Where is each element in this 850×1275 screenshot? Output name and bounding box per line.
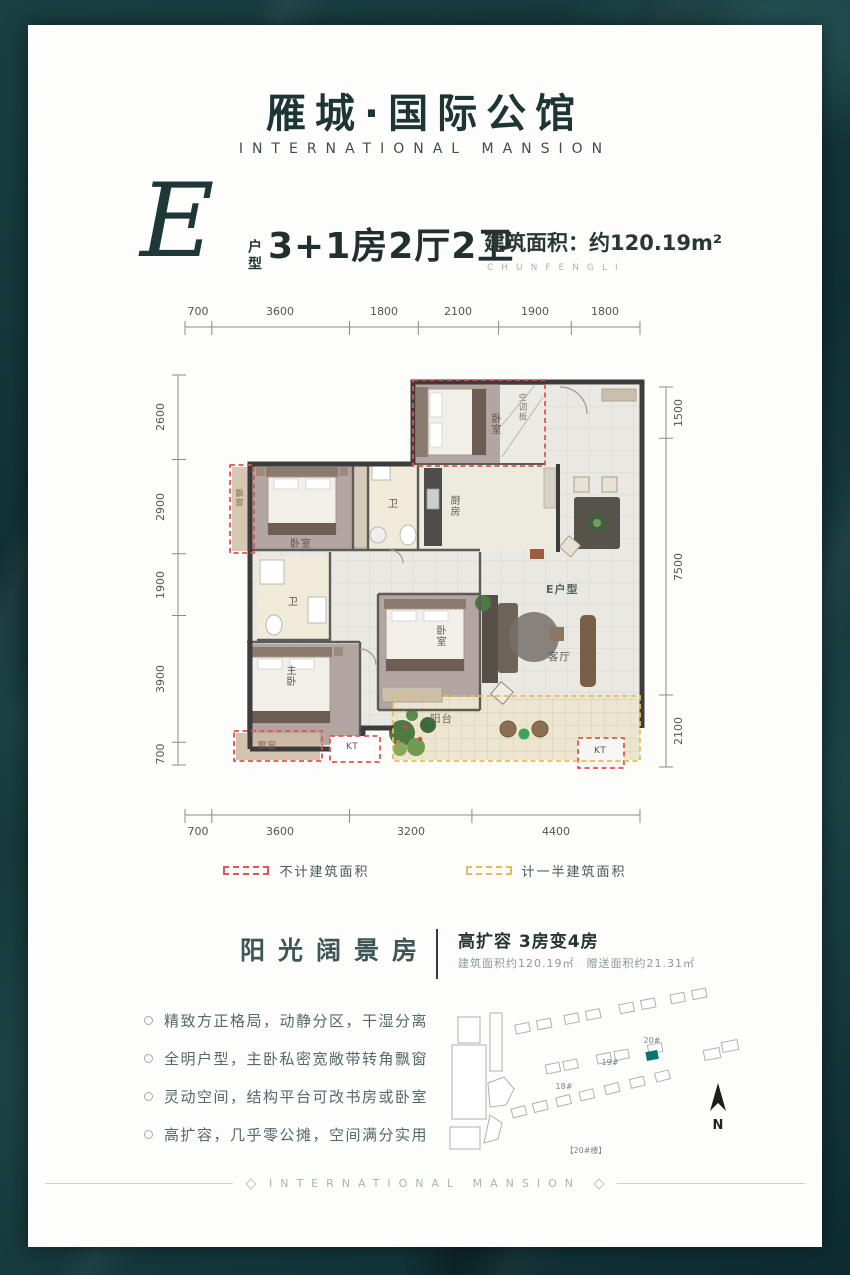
unit-letter: E (140, 171, 214, 273)
room-label-kt2: KT (594, 746, 607, 756)
dim-label: 1500 (672, 399, 685, 427)
feature-item: 高扩容，几乎零公摊，空间满分实用 (144, 1115, 474, 1153)
unit-tag-label: E户型 (546, 581, 579, 597)
room-label-bath2: 卫 (288, 593, 299, 608)
poster-page: { "brand": { "title": "雁城·国际公馆", "subtit… (0, 0, 850, 1275)
dim-label: 2100 (672, 717, 685, 745)
room-label-bedroom-mid: 卧室 (432, 625, 447, 647)
building-label-18: 18# (556, 1082, 573, 1091)
feature-item: 灵动空间，结构平台可改书房或卧室 (144, 1077, 474, 1115)
dim-label: 4400 (542, 825, 570, 838)
room-label-kitchen: 厨房 (446, 495, 461, 517)
floor-plan-svg: 700 3600 1800 2100 1900 1800 700 3600 32… (150, 297, 710, 845)
dim-label: 2100 (444, 305, 472, 318)
dim-label: 3600 (266, 825, 294, 838)
feature-item: 精致方正格局，动静分区，干湿分离 (144, 1001, 474, 1039)
plan-legend: 不计建筑面积 计一半建筑面积 (28, 861, 822, 880)
unit-area: 建筑面积：约120.19m² (484, 227, 722, 257)
footer-line (45, 1183, 233, 1184)
legend-label: 计一半建筑面积 (522, 861, 627, 880)
room-label-bedroom-left: 卧室 (290, 535, 312, 550)
dim-label: 1900 (521, 305, 549, 318)
room-label-bay-bottom: 飘窗 (258, 739, 277, 751)
room-label-living: 客厅 (548, 649, 571, 664)
highlight-divider (436, 929, 438, 979)
room-label-kt1: KT (346, 742, 359, 752)
building-label-19: 19# (602, 1058, 619, 1067)
dim-label: 2900 (154, 493, 167, 521)
diamond-icon (593, 1178, 604, 1189)
bullet-icon (144, 1092, 153, 1101)
site-plan: 18# 19# 20# 【20#楼】 N (446, 987, 746, 1165)
dim-label: 700 (154, 744, 167, 765)
feature-text: 灵动空间，结构平台可改书房或卧室 (164, 1086, 428, 1107)
legend-item-no-count: 不计建筑面积 (223, 861, 369, 880)
unit-type-label: 户型 (244, 239, 264, 273)
north-label: N (713, 1118, 724, 1133)
bullet-icon (144, 1016, 153, 1025)
unit-series-en: CHUNFENGLI (487, 263, 626, 273)
footer: INTERNATIONAL MANSION (28, 1177, 822, 1190)
yellow-dash-swatch (466, 866, 512, 875)
room-label-bedroom-top: 卧室 (487, 413, 502, 435)
legend-label: 不计建筑面积 (279, 861, 369, 880)
room-label-master: 主卧 (282, 665, 297, 687)
highlight-title: 阳光阔景房 (240, 931, 430, 967)
room-label-bath1: 卫 (388, 495, 399, 510)
unit-layout: 3+1房2厅2卫 (268, 217, 514, 269)
feature-item: 全明户型，主卧私密宽敞带转角飘窗 (144, 1039, 474, 1077)
room-label-balcony: 阳台 (430, 711, 453, 726)
red-dash-swatch (223, 866, 269, 875)
dim-label: 1800 (591, 305, 619, 318)
building-label-20: 20# (644, 1036, 661, 1045)
floor-plan: 700 3600 1800 2100 1900 1800 700 3600 32… (150, 297, 710, 845)
footer-text: INTERNATIONAL MANSION (269, 1177, 581, 1190)
feature-text: 高扩容，几乎零公摊，空间满分实用 (164, 1124, 428, 1145)
site-buildings (450, 988, 739, 1149)
brand-title: 雁城·国际公馆 (28, 81, 822, 139)
legend-item-half-count: 计一半建筑面积 (466, 861, 627, 880)
dim-label: 3900 (154, 665, 167, 693)
dim-label: 2600 (154, 403, 167, 431)
feature-text: 精致方正格局，动静分区，干湿分离 (164, 1010, 428, 1031)
bullet-icon (144, 1054, 153, 1063)
highlighted-building (645, 1050, 658, 1061)
room-label-bay-left: 飘窗 (234, 489, 245, 507)
dim-label: 1900 (154, 571, 167, 599)
site-caption: 【20#楼】 (566, 1145, 607, 1155)
feature-list: 精致方正格局，动静分区，干湿分离 全明户型，主卧私密宽敞带转角飘窗 灵动空间，结… (144, 1001, 474, 1153)
dim-label: 3200 (397, 825, 425, 838)
north-arrow-icon (710, 1083, 726, 1111)
brand-subtitle: INTERNATIONAL MANSION (28, 141, 822, 157)
poster-card: 雁城·国际公馆 INTERNATIONAL MANSION E 户型 3+1房2… (28, 25, 822, 1247)
bullet-icon (144, 1130, 153, 1139)
feature-text: 全明户型，主卧私密宽敞带转角飘窗 (164, 1048, 428, 1069)
footer-line (617, 1183, 805, 1184)
dim-label: 700 (188, 305, 209, 318)
highlight-headline: 高扩容 3房变4房 (458, 927, 599, 952)
dim-label: 700 (188, 825, 209, 838)
dim-label: 3600 (266, 305, 294, 318)
dim-label: 7500 (672, 553, 685, 581)
dim-label: 1800 (370, 305, 398, 318)
room-label-ac-board: 空调板 (516, 393, 528, 422)
highlight-subtext: 建筑面积约120.19㎡ 赠送面积约21.31㎡ (458, 955, 695, 971)
diamond-icon (245, 1178, 256, 1189)
site-plan-svg: 18# 19# 20# 【20#楼】 N (446, 987, 746, 1165)
